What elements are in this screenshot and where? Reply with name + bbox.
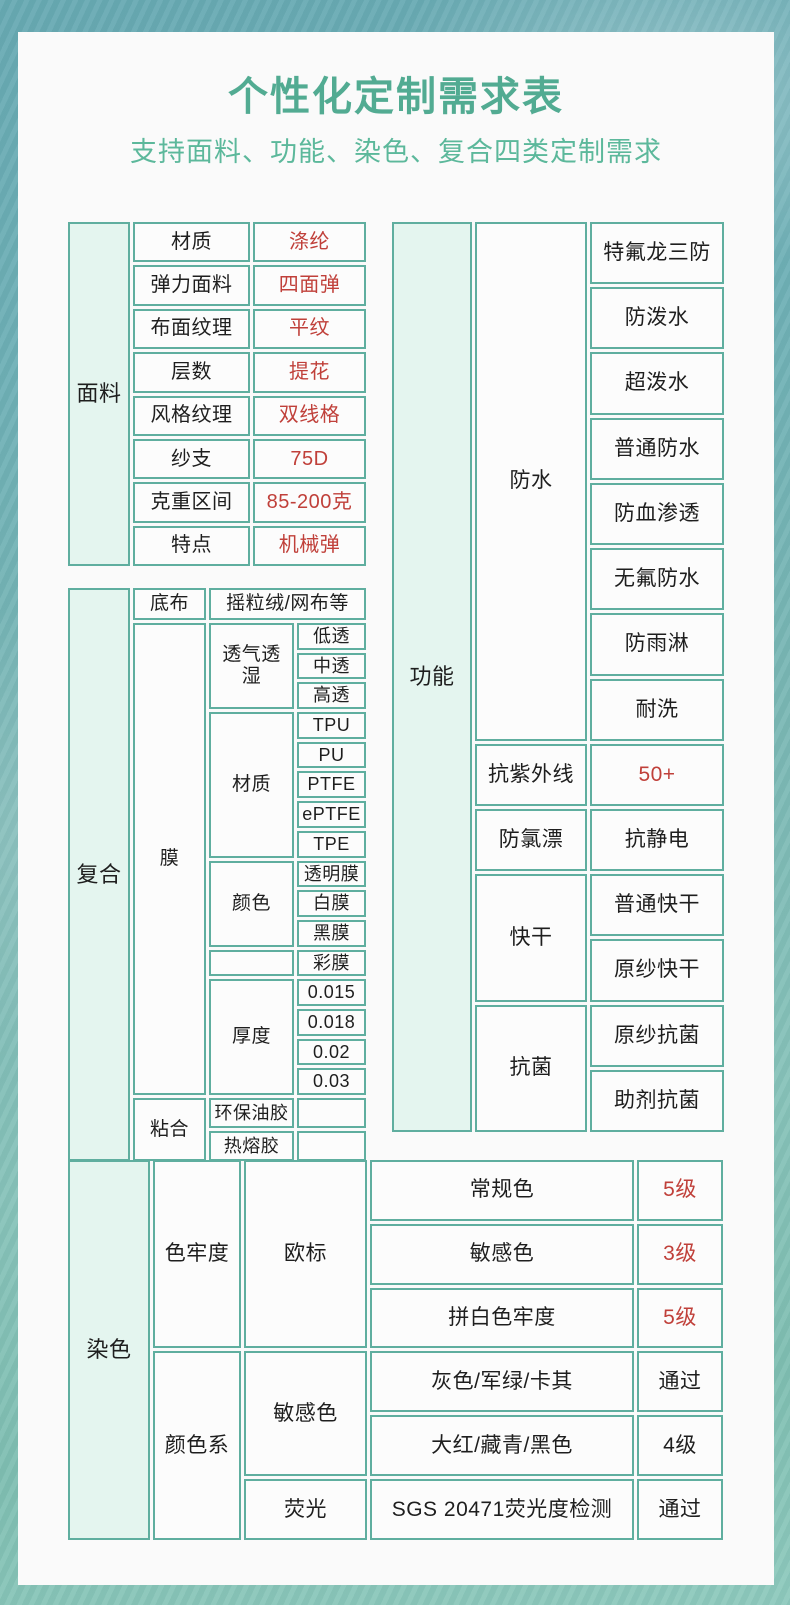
composite-option: 中透	[297, 653, 366, 680]
composite-bonding-option: 热熔胶	[209, 1131, 294, 1161]
composite-option: ePTFE	[297, 801, 366, 828]
dye-subgroup-label: 欧标	[244, 1160, 367, 1348]
page-background: { "page": { "title": "个性化定制需求表", "subtit…	[0, 0, 790, 1605]
dye-subgroup-label: 敏感色	[244, 1351, 367, 1476]
dye-item: 灰色/军绿/卡其	[370, 1351, 634, 1412]
function-item: 无氟防水	[590, 548, 724, 610]
function-item: 耐洗	[590, 679, 724, 741]
page-title: 个性化定制需求表	[18, 32, 774, 120]
dye-table: 染色色牢度欧标常规色5级敏感色3级拼白色牢度5级颜色系敏感色灰色/军绿/卡其通过…	[68, 1160, 723, 1540]
dye-group-label: 颜色系	[153, 1351, 241, 1540]
composite-category-cell: 复合	[68, 588, 130, 1161]
composite-option: 0.015	[297, 979, 366, 1006]
composite-option: 0.03	[297, 1068, 366, 1095]
fabric-row-label: 材质	[133, 222, 250, 262]
composite-option: PTFE	[297, 771, 366, 798]
function-item: 防泼水	[590, 287, 724, 349]
fabric-category-cell: 面料	[68, 222, 130, 566]
dye-item: 常规色	[370, 1160, 634, 1221]
function-section-label: 快干	[475, 874, 587, 1001]
fabric-row-value: 平纹	[253, 309, 366, 349]
function-table: 功能防水特氟龙三防防泼水超泼水普通防水防血渗透无氟防水防雨淋耐洗抗紫外线50+防…	[392, 222, 724, 1132]
composite-group-label: 材质	[209, 712, 294, 857]
dye-value: 通过	[637, 1351, 723, 1412]
composite-option: 0.018	[297, 1009, 366, 1036]
composite-group-label-empty	[209, 950, 294, 977]
page-subtitle: 支持面料、功能、染色、复合四类定制需求	[18, 120, 774, 168]
fabric-row-value: 提花	[253, 352, 366, 392]
dye-value: 4级	[637, 1415, 723, 1476]
composite-option: TPU	[297, 712, 366, 739]
composite-table: 复合底布摇粒绒/网布等膜透气透湿低透中透高透材质TPUPUPTFEePTFETP…	[68, 588, 366, 1128]
dye-item: 大红/藏青/黑色	[370, 1415, 634, 1476]
function-item: 普通快干	[590, 874, 724, 936]
composite-bonding-empty	[297, 1131, 366, 1161]
function-item: 50+	[590, 744, 724, 806]
composite-group-label: 透气透湿	[209, 623, 294, 709]
fabric-row-value: 四面弹	[253, 265, 366, 305]
function-section-label: 防水	[475, 222, 587, 741]
dye-group-label: 色牢度	[153, 1160, 241, 1348]
dye-value: 通过	[637, 1479, 723, 1540]
fabric-row-label: 特点	[133, 526, 250, 566]
fabric-row-value: 涤纶	[253, 222, 366, 262]
dye-value: 5级	[637, 1288, 723, 1349]
composite-option: 黑膜	[297, 920, 366, 947]
function-item: 原纱抗菌	[590, 1005, 724, 1067]
composite-option: 彩膜	[297, 950, 366, 977]
dye-category-cell: 染色	[68, 1160, 150, 1540]
dye-value: 5级	[637, 1160, 723, 1221]
fabric-table: 面料材质涤纶弹力面料四面弹布面纹理平纹层数提花风格纹理双线格纱支75D克重区间8…	[68, 222, 366, 566]
fabric-row-label: 布面纹理	[133, 309, 250, 349]
function-section-label: 抗菌	[475, 1005, 587, 1132]
composite-option: 高透	[297, 682, 366, 709]
composite-option: 低透	[297, 623, 366, 650]
function-item: 原纱快干	[590, 939, 724, 1001]
composite-bonding-empty	[297, 1098, 366, 1128]
dye-item: 拼白色牢度	[370, 1288, 634, 1349]
function-item: 超泼水	[590, 352, 724, 414]
fabric-row-label: 层数	[133, 352, 250, 392]
composite-option: TPE	[297, 831, 366, 858]
composite-option: 0.02	[297, 1039, 366, 1066]
function-item: 助剂抗菌	[590, 1070, 724, 1132]
function-item: 普通防水	[590, 418, 724, 480]
composite-membrane-label: 膜	[133, 623, 206, 1095]
function-section-label: 抗紫外线	[475, 744, 587, 806]
function-item: 抗静电	[590, 809, 724, 871]
composite-base-value: 摇粒绒/网布等	[209, 588, 366, 620]
fabric-row-label: 克重区间	[133, 482, 250, 522]
content-card: 个性化定制需求表 支持面料、功能、染色、复合四类定制需求 面料材质涤纶弹力面料四…	[18, 32, 774, 1585]
fabric-row-value: 75D	[253, 439, 366, 479]
function-item: 防血渗透	[590, 483, 724, 545]
dye-subgroup-label: 荧光	[244, 1479, 367, 1540]
fabric-row-label: 纱支	[133, 439, 250, 479]
composite-option: 白膜	[297, 890, 366, 917]
fabric-row-value: 85-200克	[253, 482, 366, 522]
dye-value: 3级	[637, 1224, 723, 1285]
fabric-row-label: 弹力面料	[133, 265, 250, 305]
function-item: 特氟龙三防	[590, 222, 724, 284]
fabric-row-value: 双线格	[253, 396, 366, 436]
composite-option: PU	[297, 742, 366, 769]
composite-option: 透明膜	[297, 861, 366, 888]
composite-group-label: 颜色	[209, 861, 294, 947]
fabric-row-label: 风格纹理	[133, 396, 250, 436]
function-item: 防雨淋	[590, 613, 724, 675]
composite-group-label: 厚度	[209, 979, 294, 1095]
dye-item: SGS 20471荧光度检测	[370, 1479, 634, 1540]
composite-bonding-label: 粘合	[133, 1098, 206, 1161]
function-section-label: 防氯漂	[475, 809, 587, 871]
function-category-cell: 功能	[392, 222, 472, 1132]
composite-bonding-option: 环保油胶	[209, 1098, 294, 1128]
fabric-row-value: 机械弹	[253, 526, 366, 566]
dye-item: 敏感色	[370, 1224, 634, 1285]
composite-base-label: 底布	[133, 588, 206, 620]
